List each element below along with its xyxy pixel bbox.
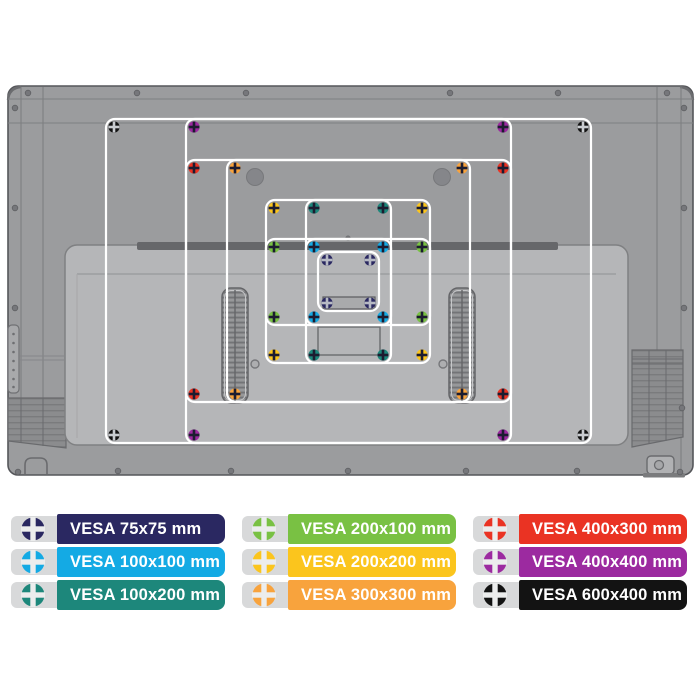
mount-hole (439, 360, 447, 368)
screw-cross-icon (21, 550, 45, 574)
lower-panel (65, 235, 628, 445)
screw-marker-100x200 (308, 349, 319, 360)
legend-label: VESA 75x75 mm (70, 520, 201, 539)
legend-label: VESA 200x100 mm (301, 520, 451, 539)
screw-marker-400x300 (497, 388, 508, 399)
screw-marker-400x400 (497, 121, 508, 132)
screw-marker-300x300 (456, 162, 467, 173)
screw-marker-200x100 (268, 311, 279, 322)
legend-item-vesa-600x400: VESA 600x400 mm (473, 580, 687, 610)
screw-marker-200x100 (416, 241, 427, 252)
screw-marker-600x400 (108, 121, 119, 132)
screw-cross-icon (252, 517, 276, 541)
legend-item-vesa-300x300: VESA 300x300 mm (242, 580, 456, 610)
panel-shadow-bar (137, 242, 558, 250)
screw-cross-icon (21, 583, 45, 607)
screw-marker-100x200 (308, 202, 319, 213)
mount-hole (251, 360, 259, 368)
legend-color-bar: VESA 100x200 mm (57, 580, 225, 610)
legend-color-bar: VESA 200x200 mm (288, 547, 456, 577)
legend-item-vesa-400x300: VESA 400x300 mm (473, 514, 687, 544)
screw-cross-icon (21, 517, 45, 541)
screw-marker-200x200 (416, 349, 427, 360)
legend-color-bar: VESA 400x400 mm (519, 547, 687, 577)
legend-label: VESA 100x200 mm (70, 586, 220, 605)
screw-marker-200x100 (268, 241, 279, 252)
screw-marker-100x100 (377, 311, 388, 322)
screw-marker-75x75 (321, 297, 332, 308)
screw-cross-icon (252, 550, 276, 574)
legend-color-bar: VESA 300x300 mm (288, 580, 456, 610)
legend-item-vesa-100x100: VESA 100x100 mm (11, 547, 225, 577)
tv-diagram (0, 0, 700, 505)
screw-marker-100x100 (308, 311, 319, 322)
screw-cross-icon (483, 517, 507, 541)
screw-marker-600x400 (577, 121, 588, 132)
screw-marker-200x200 (268, 202, 279, 213)
legend-label: VESA 400x400 mm (532, 553, 682, 572)
vent-left (8, 398, 66, 448)
screw-marker-400x400 (188, 121, 199, 132)
screw-marker-200x100 (416, 311, 427, 322)
screw-marker-400x400 (188, 429, 199, 440)
screw-marker-75x75 (321, 254, 332, 265)
legend-item-vesa-200x200: VESA 200x200 mm (242, 547, 456, 577)
legend-label: VESA 600x400 mm (532, 586, 682, 605)
legend-color-bar: VESA 200x100 mm (288, 514, 456, 544)
legend-item-vesa-75x75: VESA 75x75 mm (11, 514, 225, 544)
cable-hole (247, 169, 264, 186)
screw-marker-100x100 (377, 241, 388, 252)
screw-marker-300x300 (229, 162, 240, 173)
screw-marker-300x300 (456, 388, 467, 399)
screw-marker-400x300 (188, 162, 199, 173)
legend-label: VESA 200x200 mm (301, 553, 451, 572)
vent-right (632, 350, 683, 447)
legend-item-vesa-100x200: VESA 100x200 mm (11, 580, 225, 610)
legend-item-vesa-400x400: VESA 400x400 mm (473, 547, 687, 577)
legend-color-bar: VESA 100x100 mm (57, 547, 225, 577)
vesa-legend: VESA 75x75 mmVESA 100x100 mmVESA 100x200… (11, 514, 687, 610)
vesa-infographic: VESA 75x75 mmVESA 100x100 mmVESA 100x200… (0, 0, 700, 700)
screw-marker-400x300 (188, 388, 199, 399)
legend-item-vesa-200x100: VESA 200x100 mm (242, 514, 456, 544)
legend-color-bar: VESA 75x75 mm (57, 514, 225, 544)
screw-marker-600x400 (108, 429, 119, 440)
speaker-grille-right (449, 288, 475, 403)
screw-cross-icon (252, 583, 276, 607)
legend-color-bar: VESA 400x300 mm (519, 514, 687, 544)
screw-marker-600x400 (577, 429, 588, 440)
screw-marker-200x200 (416, 202, 427, 213)
legend-label: VESA 100x100 mm (70, 553, 220, 572)
screw-marker-400x300 (497, 162, 508, 173)
screw-cross-icon (483, 550, 507, 574)
legend-label: VESA 300x300 mm (301, 586, 451, 605)
screw-marker-400x400 (497, 429, 508, 440)
screw-marker-300x300 (229, 388, 240, 399)
screw-marker-100x200 (377, 202, 388, 213)
legend-color-bar: VESA 600x400 mm (519, 580, 687, 610)
screw-marker-75x75 (364, 254, 375, 265)
screw-marker-100x200 (377, 349, 388, 360)
screw-marker-100x100 (308, 241, 319, 252)
legend-label: VESA 400x300 mm (532, 520, 682, 539)
screw-cross-icon (483, 583, 507, 607)
screw-marker-200x200 (268, 349, 279, 360)
screw-marker-75x75 (364, 297, 375, 308)
cable-hole (434, 169, 451, 186)
